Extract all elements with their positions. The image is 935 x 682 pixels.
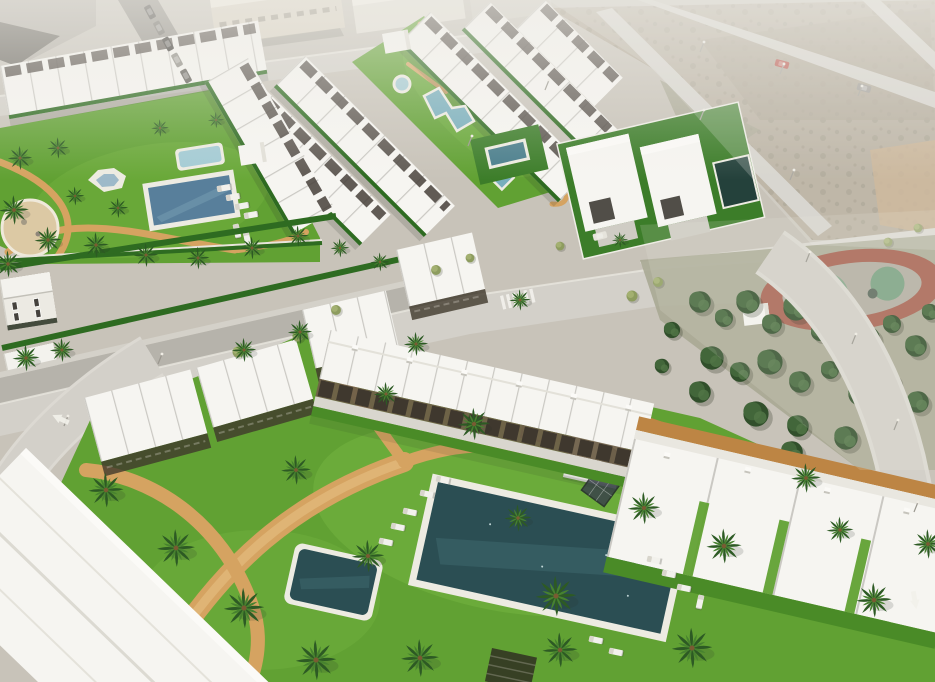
townhouse-unit	[0, 272, 57, 330]
play-equipment	[21, 219, 27, 225]
render-canvas	[0, 0, 935, 682]
back-townhouse-row	[0, 272, 57, 330]
aerial-architectural-render: Aerial 3D architectural render of a coas…	[0, 0, 935, 682]
